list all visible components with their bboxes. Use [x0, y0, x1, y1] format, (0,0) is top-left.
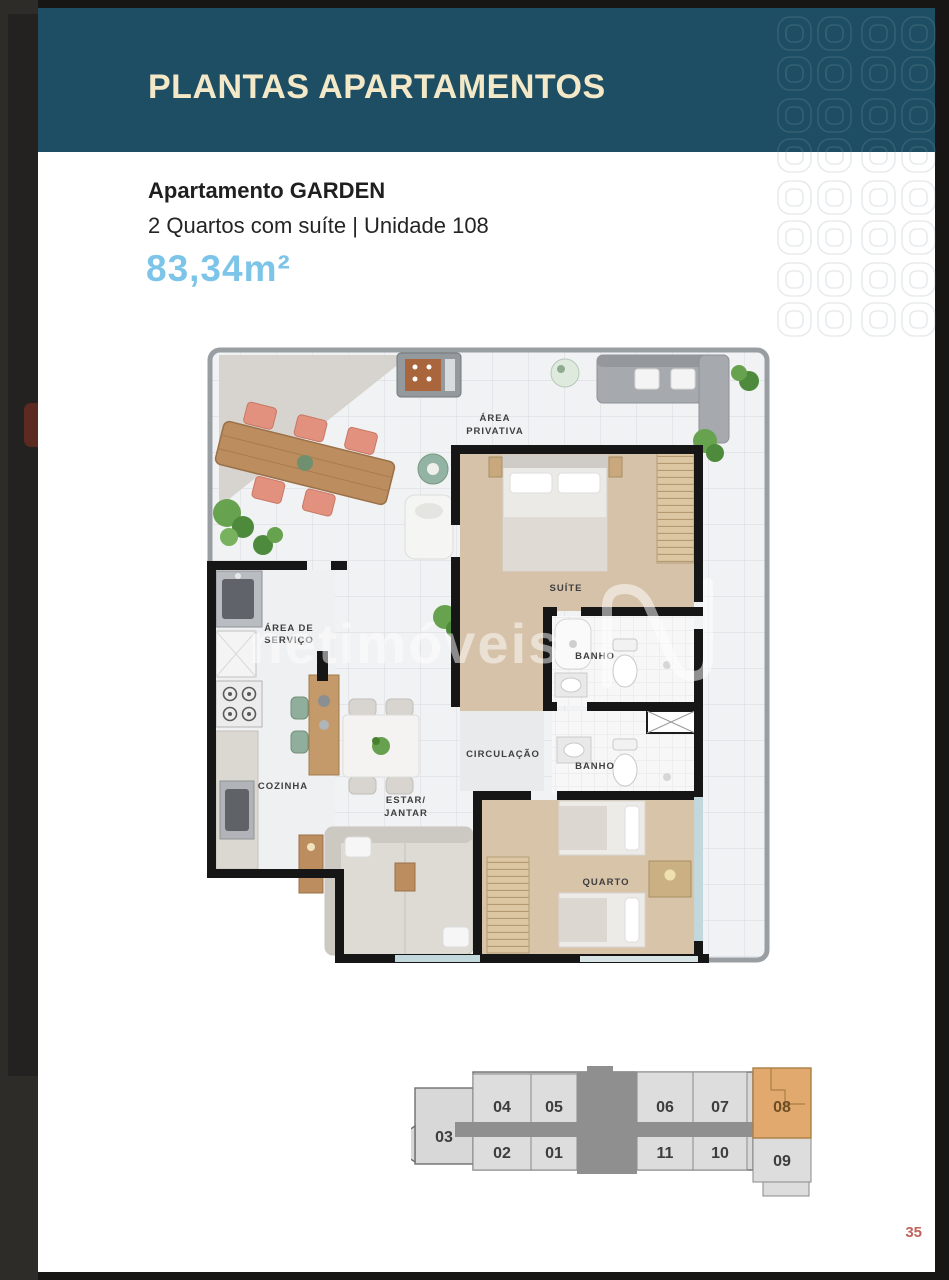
- terrace-side-table: [551, 359, 579, 387]
- keyplan-unit-06: [637, 1072, 693, 1124]
- keyplan-num-02: 02: [493, 1145, 511, 1162]
- label-estar-jantar: ESTAR/: [386, 795, 426, 806]
- glass-door-estar: [395, 955, 480, 962]
- living-sofa: [299, 827, 473, 955]
- label-estar-jantar-2: JANTAR: [384, 808, 428, 819]
- previous-page-fragment: [24, 403, 38, 447]
- page-number: 35: [905, 1224, 922, 1241]
- label-area-privativa-2: PRIVATIVA: [466, 426, 524, 437]
- grill: [397, 353, 461, 397]
- apartment-details: 2 Quartos com suíte | Unidade 108: [148, 213, 489, 239]
- keyplan-wing-step: [411, 1126, 415, 1162]
- apartment-name: Apartamento GARDEN: [148, 178, 385, 204]
- keyplan-num-01: 01: [545, 1145, 563, 1162]
- label-suite: SUÍTE: [550, 583, 583, 594]
- suite-wardrobe: [657, 451, 694, 563]
- keyplan-num-10: 10: [711, 1145, 729, 1162]
- viewer-left-panel: [8, 14, 38, 1076]
- keyplan-core: [577, 1072, 637, 1174]
- keyplan-num-08: 08: [773, 1099, 791, 1116]
- linen-closet: [647, 711, 695, 733]
- label-quarto: QUARTO: [583, 877, 630, 888]
- label-cozinha: COZINHA: [258, 781, 308, 792]
- keyplan-unit-09-foot: [763, 1182, 809, 1196]
- glass-window-quarto: [580, 956, 698, 962]
- glass-door-quarto: [694, 797, 703, 941]
- page-title: PLANTAS APARTAMENTOS: [148, 68, 606, 107]
- brochure-page: PLANTAS APARTAMENTOS Apartamento GARDEN …: [38, 8, 935, 1272]
- keyplan-unit-07: [693, 1072, 747, 1124]
- suite-bed: [489, 455, 622, 571]
- keyplan-num-05: 05: [545, 1099, 563, 1116]
- keyplan-num-07: 07: [711, 1099, 729, 1116]
- label-area-privativa: ÁREA: [480, 413, 511, 424]
- viewer-left-strip: [0, 0, 38, 1280]
- keyplan-num-03: 03: [435, 1129, 453, 1146]
- apartment-area: 83,34m²: [146, 248, 291, 290]
- keyplan: 03 04 05 06 07 08 02 01 11 10 09: [411, 1066, 821, 1198]
- keyplan-num-11: 11: [657, 1145, 674, 1162]
- watermark-text: netimóveis: [249, 612, 562, 675]
- keyplan-core-bump: [587, 1066, 613, 1076]
- label-banho-social: BANHO: [575, 761, 615, 772]
- label-circulacao: CIRCULAÇÃO: [466, 749, 540, 760]
- keyplan-num-09: 09: [773, 1153, 791, 1170]
- lounge-chair: [405, 495, 453, 559]
- keyplan-num-04: 04: [493, 1099, 511, 1116]
- page-header: PLANTAS APARTAMENTOS: [38, 8, 935, 152]
- terrace-pouf: [418, 454, 448, 484]
- keyplan-num-06: 06: [656, 1099, 674, 1116]
- floor-plan: ÁREA PRIVATIVA SUÍTE BANHO BANHO CIRCULA…: [205, 345, 772, 965]
